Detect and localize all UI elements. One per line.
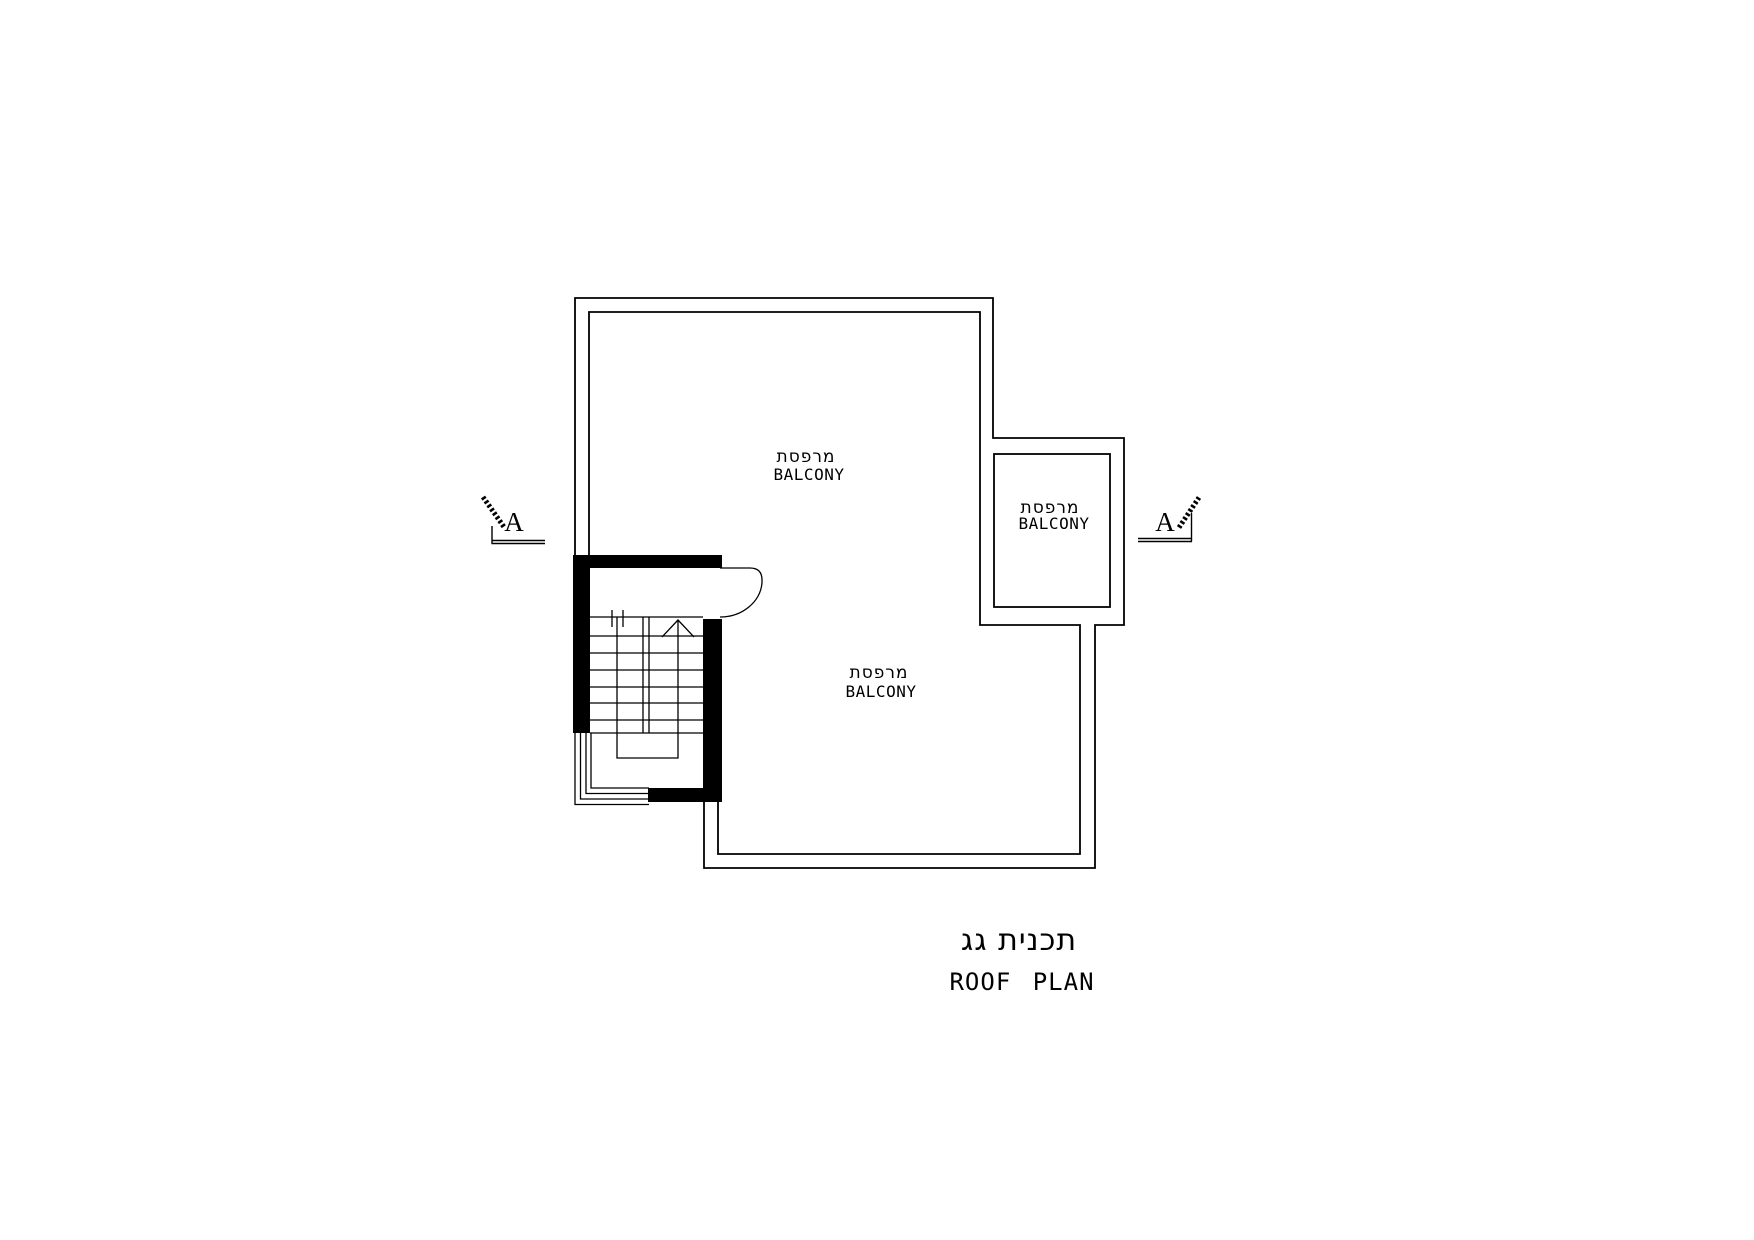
stair-wall-top <box>573 555 722 568</box>
stair-wall-right <box>703 619 722 802</box>
balcony-top-label-english: BALCONY <box>774 465 845 484</box>
section-letter-right: A <box>1155 507 1175 537</box>
stair-enclosure-walls <box>573 555 722 802</box>
balcony-right-label-english: BALCONY <box>1019 514 1090 533</box>
parapet-inner-outline <box>589 312 1080 854</box>
title-block: תכנית גג ROOF PLAN <box>949 923 1094 996</box>
stair-wall-left <box>573 555 590 733</box>
section-cut-line-icon <box>1179 498 1199 528</box>
stair-wall-bottom <box>648 788 722 802</box>
room-labels: מרפסת BALCONY מרפסת BALCONY מרפסת BALCON… <box>774 447 1090 701</box>
section-letter-left: A <box>504 507 524 537</box>
section-cut-line-icon <box>483 497 504 527</box>
section-marker-right: A <box>1138 498 1199 542</box>
drawing-title-english: ROOF PLAN <box>949 968 1094 996</box>
balcony-middle-label-english: BALCONY <box>846 682 917 701</box>
roof-plan-svg: A A מרפסת BALCONY מרפסת BALCONY מרפסת BA… <box>0 0 1754 1240</box>
balcony-middle-label-hebrew: מרפסת <box>850 663 909 683</box>
section-marker-left: A <box>483 497 545 544</box>
balcony-top-label-hebrew: מרפסת <box>777 447 836 467</box>
staircase <box>575 610 703 805</box>
stair-lower-left-lines <box>575 733 649 805</box>
parapet-outer-outline <box>575 298 1124 868</box>
stair-rails <box>617 617 678 733</box>
stair-landing <box>617 733 678 758</box>
roof-plan-drawing: A A מרפסת BALCONY מרפסת BALCONY מרפסת BA… <box>0 0 1754 1240</box>
drawing-title-hebrew: תכנית גג <box>961 923 1077 958</box>
stair-treads <box>590 617 703 733</box>
door-swing <box>720 568 762 617</box>
parapet-walls <box>575 298 1124 868</box>
